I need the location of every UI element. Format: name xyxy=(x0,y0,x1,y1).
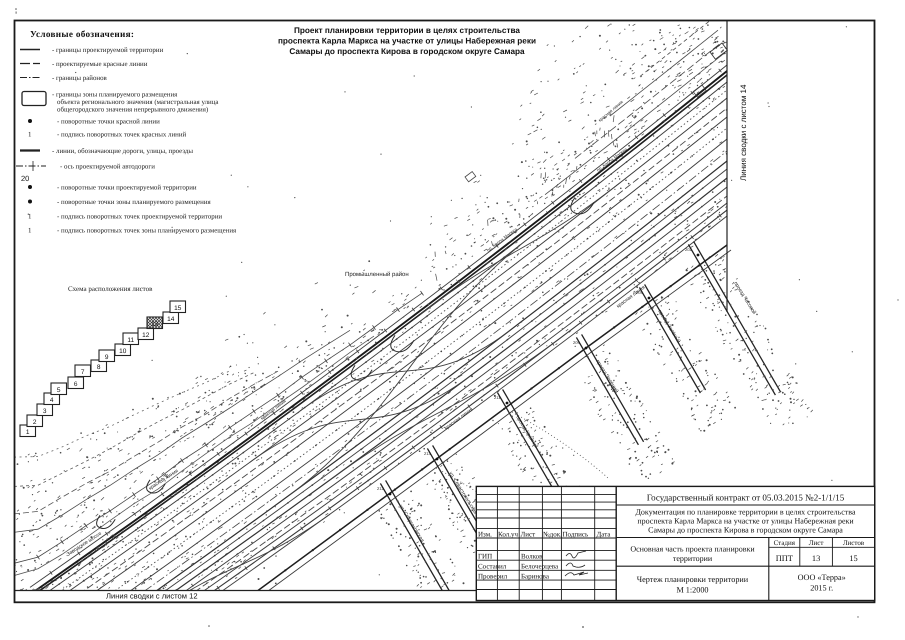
svg-text:Государственный контракт от 05: Государственный контракт от 05.03.2015 №… xyxy=(647,493,845,503)
svg-text:- линии, обозначающие дороги,: - линии, обозначающие дороги, улицы, про… xyxy=(52,148,193,155)
svg-text:1: 1 xyxy=(26,429,30,436)
svg-text:Волков: Волков xyxy=(521,553,543,561)
svg-text:12: 12 xyxy=(142,332,150,339)
svg-text:4: 4 xyxy=(50,397,54,404)
svg-text:- проектируемые красные линии: - проектируемые красные линии xyxy=(52,61,148,68)
svg-text:- границы зоны планируемого ра: - границы зоны планируемого размещения xyxy=(52,92,178,99)
svg-text:Чертеж планировки территории: Чертеж планировки территории xyxy=(637,575,749,584)
svg-text:13: 13 xyxy=(812,554,820,563)
svg-text:Проверил: Проверил xyxy=(478,573,508,581)
svg-text:15: 15 xyxy=(849,554,857,563)
svg-text:Документация по планировке тер: Документация по планировке территории в … xyxy=(635,508,855,517)
svg-text:Составил: Составил xyxy=(478,563,507,571)
svg-text:- границы районов: - границы районов xyxy=(52,75,108,82)
svg-text:14: 14 xyxy=(167,316,175,323)
svg-text:- границы проектируемой террит: - границы проектируемой территории xyxy=(52,47,164,54)
svg-text:15: 15 xyxy=(174,305,182,312)
svg-text:М 1:2000: М 1:2000 xyxy=(676,586,708,595)
svg-text:3: 3 xyxy=(43,408,47,415)
svg-text:213: 213 xyxy=(424,451,431,456)
svg-text:Основная часть проекта планиро: Основная часть проекта планировки xyxy=(630,545,755,554)
svg-text:- ось проектируемой автодороги: - ось проектируемой автодороги xyxy=(60,164,155,171)
svg-text:1: 1 xyxy=(28,227,32,235)
svg-text:204: 204 xyxy=(636,290,643,295)
svg-text:- подпись поворотных точек про: - подпись поворотных точек проектируемой… xyxy=(57,214,222,221)
svg-text:проспекта Карла Маркса на учас: проспекта Карла Маркса на участке от ули… xyxy=(637,517,854,526)
svg-text:Проект планировки территории в: Проект планировки территории в целях стр… xyxy=(294,26,520,35)
svg-text:2: 2 xyxy=(33,419,37,426)
svg-text:ООО «Терра»: ООО «Терра» xyxy=(798,573,846,582)
svg-text:Схема расположения листов: Схема расположения листов xyxy=(68,285,153,293)
svg-text:Линия сводки с листом 14: Линия сводки с листом 14 xyxy=(739,84,748,181)
svg-text:- поворотные точки зоны планир: - поворотные точки зоны планируемого раз… xyxy=(57,199,212,206)
svg-text:Самары до проспекта Кирова в г: Самары до проспекта Кирова в городском о… xyxy=(648,526,843,535)
svg-text:общегородского значения непрер: общегородского значения непрерывного дви… xyxy=(57,107,208,114)
svg-text:5: 5 xyxy=(57,387,61,394)
svg-text:8: 8 xyxy=(97,364,101,371)
svg-text:Лист: Лист xyxy=(809,539,824,547)
svg-text:Кол.уч: Кол.уч xyxy=(498,531,518,539)
svg-text:- поворотные точки красной лин: - поворотные точки красной линии xyxy=(57,119,160,126)
svg-text:13: 13 xyxy=(151,321,159,328)
svg-text:6: 6 xyxy=(74,381,78,388)
svg-text:Листов: Листов xyxy=(843,539,865,547)
svg-text:- подпись поворотных точек кра: - подпись поворотных точек красных линий xyxy=(57,132,187,139)
svg-text:- подпись поворотных точек зон: - подпись поворотных точек зоны планируе… xyxy=(57,228,237,235)
svg-text:Линия сводки с листом 12: Линия сводки с листом 12 xyxy=(106,592,198,601)
svg-text:ППТ: ППТ xyxy=(776,554,793,563)
svg-text:Условные обозначения:: Условные обозначения: xyxy=(30,29,134,39)
svg-text:10: 10 xyxy=(119,348,127,355)
svg-text:Лист: Лист xyxy=(521,531,536,539)
svg-text:Белочерцева: Белочерцева xyxy=(521,563,559,571)
svg-text:- поворотные точки проектируем: - поворотные точки проектируемой террито… xyxy=(57,185,197,192)
svg-text:1: 1 xyxy=(28,213,32,221)
svg-text:Подпись: Подпись xyxy=(563,531,589,539)
svg-text:Стадия: Стадия xyxy=(774,539,796,547)
svg-text:Дата: Дата xyxy=(597,531,612,539)
svg-text:9: 9 xyxy=(105,354,109,361)
svg-text:ГИП: ГИП xyxy=(478,553,492,561)
svg-text:№док.: №док. xyxy=(543,531,562,539)
svg-text:20: 20 xyxy=(21,174,29,183)
svg-text:Промышленный район: Промышленный район xyxy=(345,271,409,278)
svg-text:202: 202 xyxy=(685,247,692,252)
svg-text:7: 7 xyxy=(81,369,85,376)
svg-text:1: 1 xyxy=(28,131,32,139)
svg-text:Баринова: Баринова xyxy=(521,573,550,581)
svg-text:2015 г.: 2015 г. xyxy=(810,584,833,593)
svg-text:Изм.: Изм. xyxy=(478,531,492,539)
svg-text:212: 212 xyxy=(377,486,384,491)
svg-text:11: 11 xyxy=(127,337,134,344)
svg-text:205: 205 xyxy=(573,340,580,345)
svg-text:территории: территории xyxy=(673,554,713,563)
svg-text:объекта регионального значения: объекта регионального значения (магистра… xyxy=(57,99,218,106)
svg-text:проспекта Карла Маркса на учас: проспекта Карла Маркса на участке от ули… xyxy=(278,37,536,46)
svg-text:Самары до проспекта Кирова в г: Самары до проспекта Кирова в городском о… xyxy=(289,47,525,56)
